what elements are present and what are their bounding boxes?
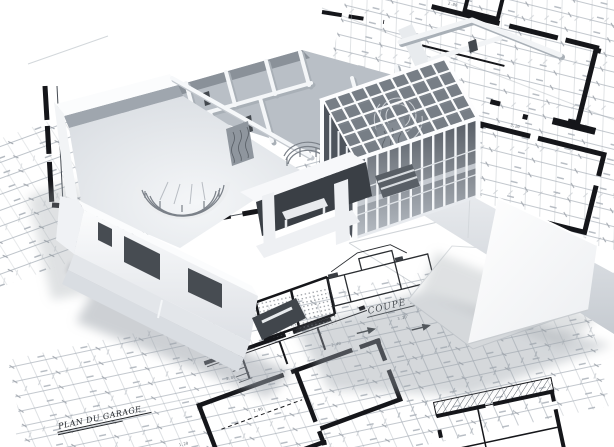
render-canvas: 2.80 3.20 <box>0 0 614 447</box>
architectural-model-photo: 2.80 3.20 <box>0 0 614 447</box>
